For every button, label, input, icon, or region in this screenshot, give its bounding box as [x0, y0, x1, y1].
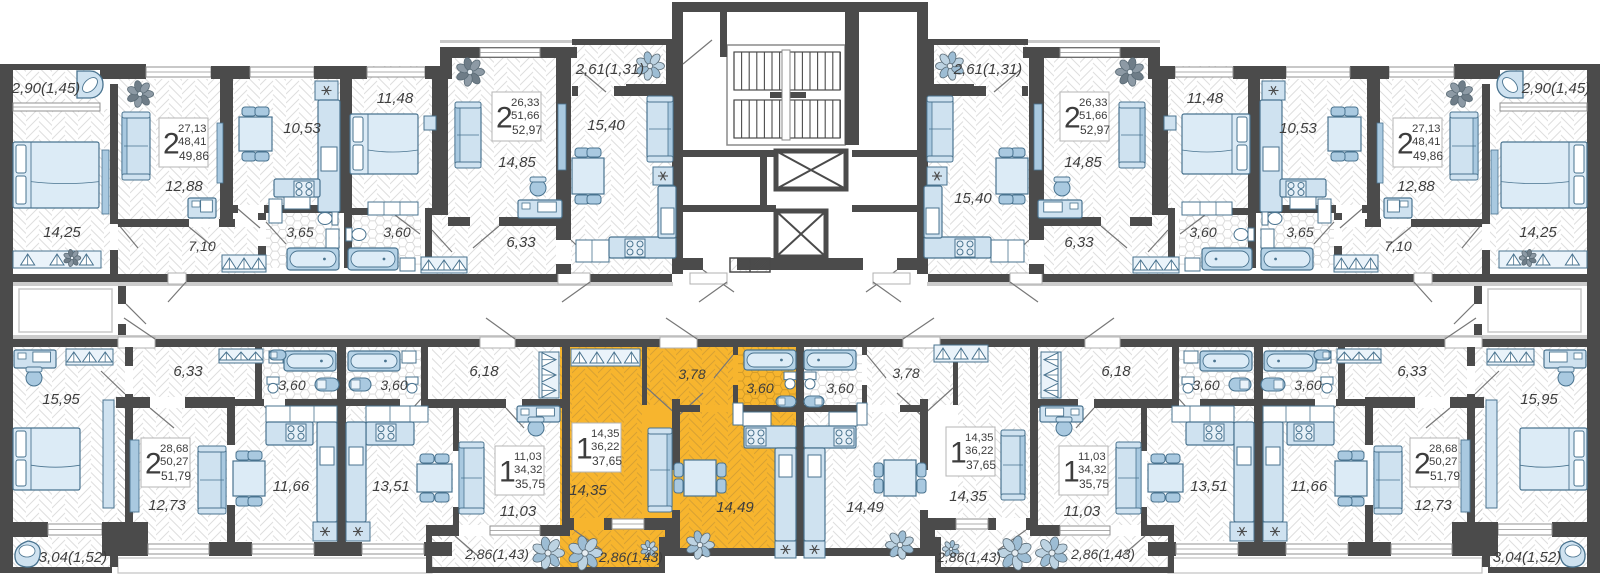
svg-text:3,65: 3,65 [286, 224, 313, 240]
svg-text:34,32: 34,32 [1078, 464, 1107, 476]
svg-text:7,10: 7,10 [188, 238, 215, 254]
svg-text:10,53: 10,53 [1279, 120, 1317, 137]
svg-text:35,75: 35,75 [1079, 477, 1109, 491]
svg-text:3,65: 3,65 [1286, 224, 1313, 240]
svg-text:2,86(1,43): 2,86(1,43) [598, 549, 663, 565]
svg-text:3,04(1,52): 3,04(1,52) [39, 549, 107, 566]
svg-text:50,27: 50,27 [1429, 456, 1458, 468]
svg-text:26,33: 26,33 [1079, 97, 1108, 109]
svg-text:11,66: 11,66 [1291, 478, 1328, 495]
svg-text:3,60: 3,60 [383, 224, 410, 240]
svg-text:12,73: 12,73 [148, 497, 186, 514]
svg-text:48,41: 48,41 [1412, 136, 1441, 148]
svg-text:13,51: 13,51 [1190, 478, 1228, 495]
svg-text:3,78: 3,78 [892, 365, 919, 381]
svg-text:15,95: 15,95 [1520, 391, 1558, 408]
svg-text:14,85: 14,85 [498, 154, 536, 171]
svg-text:6,33: 6,33 [506, 234, 536, 251]
svg-text:14,35: 14,35 [591, 428, 620, 440]
svg-text:15,40: 15,40 [954, 190, 992, 207]
svg-text:10,53: 10,53 [283, 120, 321, 137]
svg-text:11,03: 11,03 [1064, 503, 1101, 520]
svg-text:2,61(1,31): 2,61(1,31) [953, 61, 1022, 78]
svg-text:27,13: 27,13 [1412, 123, 1441, 135]
svg-text:51,79: 51,79 [1430, 469, 1460, 483]
svg-text:27,13: 27,13 [178, 123, 207, 135]
svg-text:12,88: 12,88 [165, 178, 203, 195]
svg-text:6,33: 6,33 [1064, 234, 1094, 251]
svg-text:3,78: 3,78 [678, 366, 705, 382]
svg-text:49,86: 49,86 [1413, 149, 1443, 163]
svg-text:11,48: 11,48 [1187, 90, 1224, 107]
svg-text:6,18: 6,18 [469, 363, 499, 380]
svg-text:14,49: 14,49 [846, 499, 884, 516]
svg-text:11,66: 11,66 [273, 478, 310, 495]
svg-text:12,73: 12,73 [1414, 497, 1452, 514]
svg-text:51,66: 51,66 [1079, 110, 1108, 122]
svg-text:37,65: 37,65 [592, 454, 622, 468]
svg-text:50,27: 50,27 [160, 456, 189, 468]
svg-text:51,66: 51,66 [511, 110, 540, 122]
svg-text:3,60: 3,60 [1192, 377, 1219, 393]
svg-text:2,61(1,31): 2,61(1,31) [575, 61, 644, 78]
svg-text:26,33: 26,33 [511, 97, 540, 109]
svg-text:3,04(1,52): 3,04(1,52) [1493, 549, 1561, 566]
svg-text:14,85: 14,85 [1064, 154, 1102, 171]
svg-text:3,60: 3,60 [746, 380, 773, 396]
svg-text:7,10: 7,10 [1384, 238, 1411, 254]
svg-text:28,68: 28,68 [160, 443, 189, 455]
svg-text:28,68: 28,68 [1429, 443, 1458, 455]
svg-text:11,48: 11,48 [377, 90, 414, 107]
svg-text:34,32: 34,32 [514, 464, 543, 476]
svg-text:2,86(1,43): 2,86(1,43) [464, 546, 529, 562]
svg-text:6,33: 6,33 [1397, 363, 1427, 380]
svg-text:14,25: 14,25 [43, 224, 81, 241]
svg-text:6,33: 6,33 [173, 363, 203, 380]
svg-text:14,49: 14,49 [716, 499, 754, 516]
svg-text:36,22: 36,22 [591, 441, 620, 453]
svg-text:3,60: 3,60 [278, 377, 305, 393]
svg-text:14,35: 14,35 [965, 432, 994, 444]
svg-text:2,86(1,43): 2,86(1,43) [1070, 546, 1135, 562]
svg-text:2,90(1,45): 2,90(1,45) [1521, 80, 1590, 97]
svg-text:13,51: 13,51 [372, 478, 410, 495]
svg-text:11,03: 11,03 [1078, 451, 1106, 463]
svg-text:6,18: 6,18 [1101, 363, 1131, 380]
svg-text:11,03: 11,03 [500, 503, 537, 520]
svg-text:48,41: 48,41 [178, 136, 207, 148]
svg-text:37,65: 37,65 [966, 458, 996, 472]
svg-text:3,60: 3,60 [1294, 377, 1321, 393]
svg-text:14,35: 14,35 [569, 482, 607, 499]
svg-text:52,97: 52,97 [512, 123, 542, 137]
svg-text:2,90(1,45): 2,90(1,45) [11, 80, 80, 97]
svg-text:11,03: 11,03 [514, 451, 542, 463]
svg-text:51,79: 51,79 [161, 469, 191, 483]
svg-text:2,86(1,43): 2,86(1,43) [936, 549, 1001, 565]
svg-text:3,60: 3,60 [380, 377, 407, 393]
svg-text:15,40: 15,40 [587, 117, 625, 134]
svg-text:52,97: 52,97 [1080, 123, 1110, 137]
svg-text:14,35: 14,35 [949, 488, 987, 505]
svg-text:14,25: 14,25 [1519, 224, 1557, 241]
svg-text:36,22: 36,22 [965, 445, 994, 457]
svg-text:3,60: 3,60 [1189, 224, 1216, 240]
svg-text:3,60: 3,60 [826, 380, 853, 396]
svg-text:49,86: 49,86 [179, 149, 209, 163]
svg-text:15,95: 15,95 [42, 391, 80, 408]
svg-text:12,88: 12,88 [1397, 178, 1435, 195]
svg-text:35,75: 35,75 [515, 477, 545, 491]
